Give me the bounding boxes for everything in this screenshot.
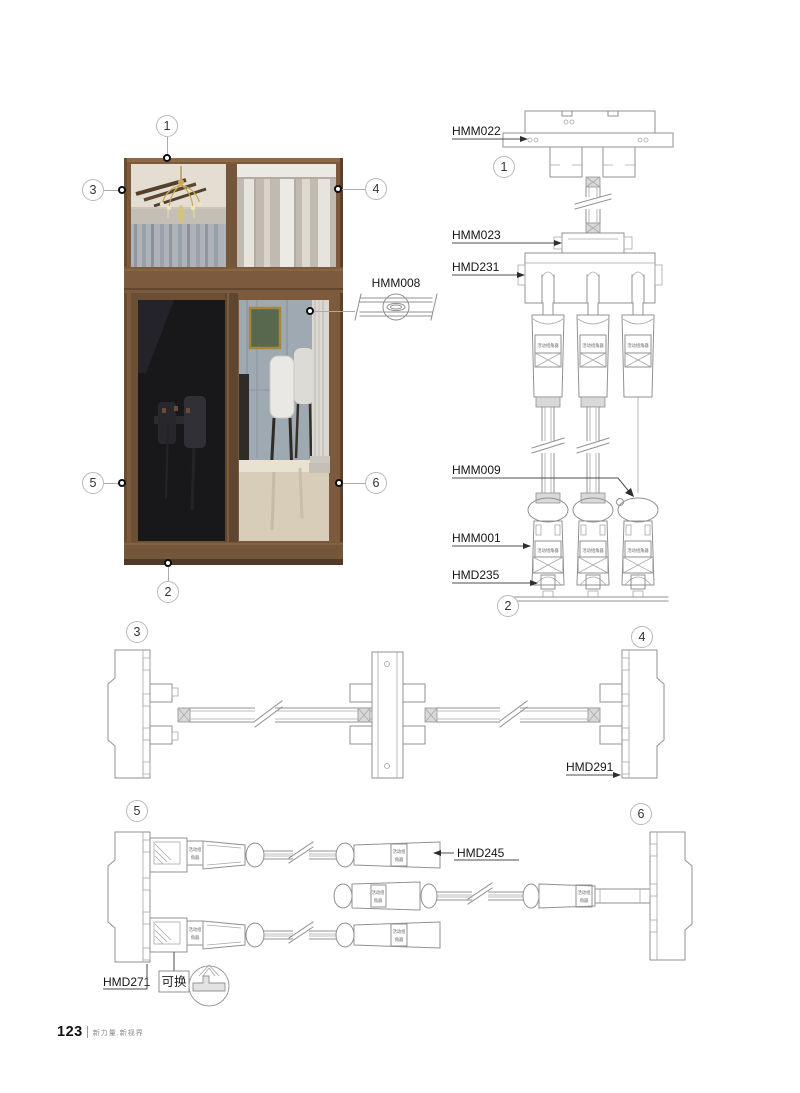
right-jamb — [600, 650, 664, 778]
photo-callout-4: 4 — [365, 178, 387, 200]
label-hmd235: HMD235 — [452, 568, 500, 582]
part-tag: 活动组角器 — [582, 342, 604, 349]
callout-number: 3 — [90, 183, 97, 197]
part-tag: 角器 — [395, 936, 404, 943]
replaceable-label: 可换 — [161, 975, 187, 989]
sash-top-hangers: 活动组角器 活动组角器 活动组角器 — [532, 303, 654, 397]
hmd291-label-group: HMD291 — [566, 760, 621, 778]
callout-number: 2 — [165, 585, 172, 599]
part-tag: 活动组 — [578, 889, 592, 896]
sash-glass — [532, 397, 638, 503]
callout-6-dot — [335, 479, 343, 487]
part-tag: 角器 — [580, 897, 589, 904]
section-callout-6: 6 — [630, 803, 652, 825]
section-callout-1: 1 — [493, 156, 515, 178]
fixed-glass-right — [425, 701, 600, 727]
label-hmm008: HMM008 — [372, 276, 421, 290]
callout-4-dot — [334, 185, 342, 193]
meeting-stile — [225, 293, 238, 548]
part-tag: 活动组 — [189, 926, 203, 933]
horizontal-section-34-drawing: HMD291 — [95, 620, 675, 805]
curtain — [131, 224, 226, 267]
footer-slogan: 新力量.新视界 — [93, 1026, 144, 1038]
part-tag: 活动组角器 — [582, 547, 604, 554]
section-callout-3: 3 — [126, 621, 148, 643]
photo-callout-6: 6 — [365, 472, 387, 494]
adapter-hmm023 — [554, 233, 632, 253]
section-callout-4: 4 — [631, 626, 653, 648]
label-hmd271: HMD271 — [103, 975, 151, 989]
callout-number: 6 — [638, 807, 645, 821]
callout-number: 1 — [164, 119, 171, 133]
photo-callout-3: 3 — [82, 179, 104, 201]
callout-number: 5 — [90, 476, 97, 490]
vertical-section-drawing: 活动组角器 活动组角器 活动组角器 — [450, 105, 690, 617]
section-callout-2: 2 — [497, 595, 519, 617]
photo-callout-2: 2 — [157, 581, 179, 603]
replaceable-note: 可换 — [159, 952, 229, 1006]
bottom-track-line — [510, 597, 668, 601]
callout-4-leader — [338, 189, 365, 190]
hmd271-label-group: HMD271 — [103, 964, 151, 989]
callout-1-dot — [163, 154, 171, 162]
transom-glass — [575, 177, 611, 233]
part-tag: 活动组 — [393, 928, 407, 935]
callout-number: 1 — [501, 160, 508, 174]
callout-number: 2 — [505, 599, 512, 613]
top-track-hmd231 — [518, 253, 662, 303]
part-tag: 角器 — [395, 856, 404, 863]
callout-number: 5 — [134, 804, 141, 818]
column — [309, 300, 330, 473]
footer-divider — [87, 1026, 88, 1038]
part-tag: 活动组角器 — [627, 342, 649, 349]
transom-right-pane — [237, 164, 336, 267]
hmd245-label-group: HMD245 — [433, 846, 519, 860]
label-hmd291: HMD291 — [566, 760, 614, 774]
callout-2-dot — [164, 559, 172, 567]
window-photo — [124, 158, 343, 565]
sliding-right-sash — [232, 293, 336, 548]
part-tag: 角器 — [374, 897, 383, 904]
head-frame-hmm022 — [503, 111, 673, 177]
callout-3-dot — [118, 186, 126, 194]
part-tag: 活动组角器 — [537, 547, 559, 554]
part-tag: 活动组角器 — [537, 342, 559, 349]
bottom-rail — [124, 542, 343, 565]
track-row-inner: 活动组 角器 活动组 角器 — [150, 918, 440, 952]
fixed-glass-left — [178, 701, 372, 727]
section-callout-5: 5 — [126, 800, 148, 822]
horizontal-section-56-drawing: 活动组 角器 活动组 角器 活动组 角器 — [95, 800, 695, 1012]
vertical-section-labels: HMM022 HMM023 HMD231 HMM009 HMM001 HMD23… — [452, 124, 634, 586]
callout-number: 4 — [639, 630, 646, 644]
part-tag: 角器 — [191, 854, 200, 861]
photo-callout-1: 1 — [156, 115, 178, 137]
part-tag: 活动组 — [393, 848, 407, 855]
photo-callout-5: 5 — [82, 472, 104, 494]
transom-left-pane — [131, 164, 226, 267]
callout-number: 6 — [373, 476, 380, 490]
left-jamb — [108, 650, 178, 778]
part-tag: 活动组 — [372, 889, 386, 896]
part-tag: 活动组 — [189, 846, 203, 853]
label-hmm009: HMM009 — [452, 463, 501, 477]
hmm008-leader — [313, 311, 355, 312]
label-hmd245: HMD245 — [457, 846, 505, 860]
catalog-page: HMM008 — [0, 0, 800, 1093]
transom-mullion — [226, 164, 237, 267]
label-hmd231: HMD231 — [452, 260, 500, 274]
hmm008-dot — [306, 307, 314, 315]
callout-5-dot — [118, 479, 126, 487]
page-number: 123 — [57, 1024, 83, 1040]
interlock-section — [355, 294, 437, 320]
hmm008-detail-drawing: HMM008 — [352, 276, 440, 328]
transom-bar — [124, 267, 343, 293]
track-row-outer: 活动组 角器 活动组 角器 — [150, 838, 440, 872]
sliding-left-sash — [131, 293, 232, 548]
track-row-middle: 活动组 角器 活动组 角器 — [334, 882, 650, 910]
part-tag: 角器 — [191, 934, 200, 941]
callout-number: 4 — [373, 182, 380, 196]
part-tag: 活动组角器 — [627, 547, 649, 554]
label-hmm001: HMM001 — [452, 531, 501, 545]
right-jamb — [650, 832, 692, 960]
replaceable-part-emblem — [189, 965, 229, 1006]
page-footer: 123 新力量.新视界 — [57, 1024, 144, 1040]
left-jamb — [108, 832, 150, 962]
callout-number: 3 — [134, 625, 141, 639]
sash-bottom-rollers: 活动组角器 活动组角器 活动组角器 — [510, 498, 668, 601]
label-hmm023: HMM023 — [452, 228, 501, 242]
label-hmm022: HMM022 — [452, 124, 501, 138]
